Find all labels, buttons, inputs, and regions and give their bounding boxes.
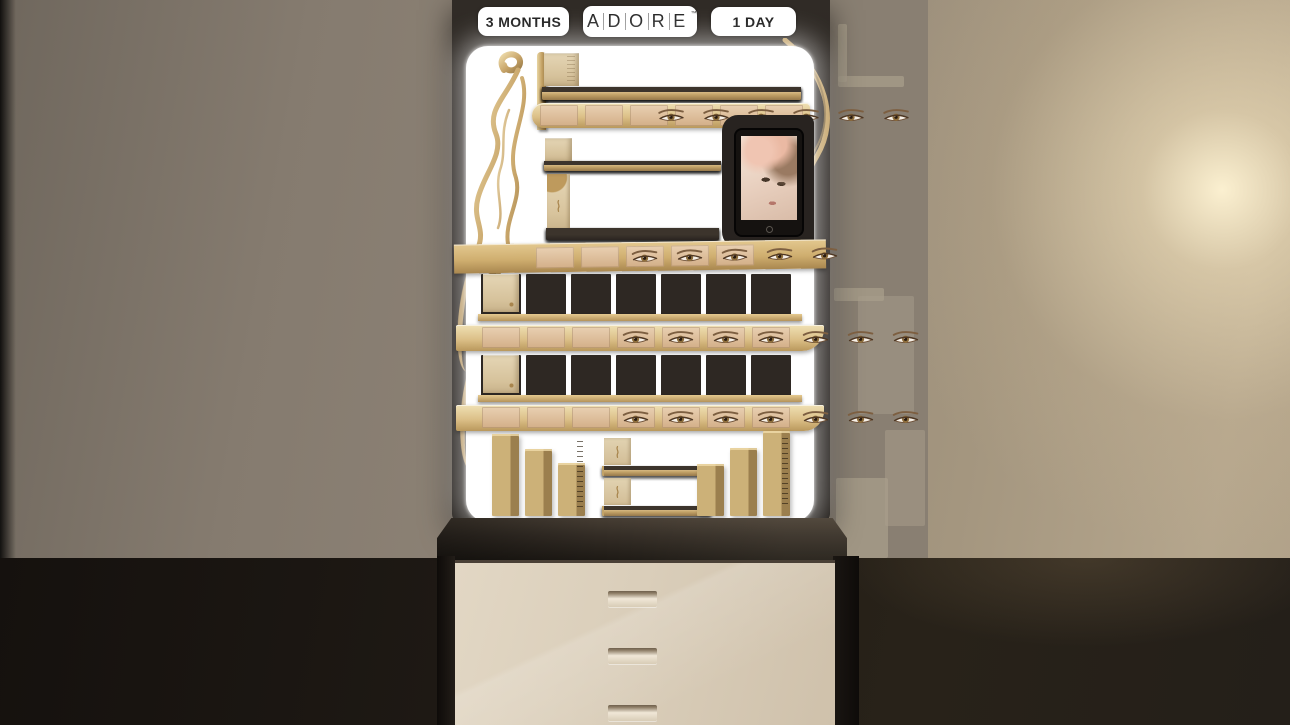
drawer-handles — [608, 591, 657, 721]
eye-sample-photo — [752, 327, 790, 348]
product-box-holder — [602, 506, 711, 516]
brand-logo: ADORE™ — [583, 6, 697, 37]
eye-sample-photo — [540, 105, 578, 126]
eye-sample-photo — [572, 407, 610, 428]
eye-sample-photo — [617, 407, 655, 428]
product-box-holder — [602, 466, 711, 476]
tall-gold-carton — [525, 449, 552, 516]
eye-sample-photo — [671, 245, 709, 267]
eye-sample-photo — [707, 327, 745, 348]
eye-sample-photo — [675, 105, 713, 126]
eye-sample-photo — [707, 407, 745, 428]
eye-sample-strip-4 — [456, 405, 824, 431]
model-portrait-photo — [741, 136, 797, 220]
trademark-symbol: ™ — [691, 11, 697, 17]
label-1-day: 1 DAY — [711, 7, 796, 36]
logo-letter: O — [625, 11, 647, 32]
tall-cartons-right — [697, 431, 790, 516]
drawer-handle — [608, 648, 657, 664]
logo-letter: R — [648, 11, 669, 32]
tall-product-carton — [694, 174, 719, 240]
eye-sample-tiles — [482, 407, 790, 428]
gold-signature-motif — [613, 483, 622, 501]
drawer-handle — [608, 591, 657, 607]
eye-sample-photo — [527, 407, 565, 428]
product-box-holder — [546, 228, 719, 240]
logo-letter: A — [583, 11, 603, 32]
logo-letter: D — [604, 11, 625, 32]
eye-sample-photo — [617, 327, 655, 348]
cube-box-face — [604, 478, 631, 505]
gold-signature-motif — [554, 196, 563, 216]
panel-shadow-shape — [858, 296, 914, 414]
label-3-months-text: 3 MONTHS — [486, 14, 562, 30]
eye-sample-photo — [662, 327, 700, 348]
eye-sample-photo — [752, 407, 790, 428]
floor-light-reflection — [840, 558, 1290, 648]
product-box — [692, 138, 721, 171]
tall-gold-carton — [492, 434, 519, 516]
gold-signature-motif — [613, 443, 622, 461]
product-carton-face — [547, 174, 570, 230]
eye-sample-tiles — [482, 327, 790, 348]
eye-sample-photo — [630, 105, 668, 126]
eye-sample-photo — [716, 244, 754, 266]
eye-sample-photo — [572, 327, 610, 348]
base-side-post-right — [833, 556, 859, 725]
drawer-cabinet — [455, 560, 835, 725]
eye-sample-photo — [581, 246, 619, 268]
cube-boxes-bottom-row — [602, 478, 711, 516]
product-box-holder — [542, 87, 801, 100]
eye-sample-photo — [536, 247, 574, 269]
logo-letter: E — [669, 11, 689, 32]
panel-shadow-shape — [885, 430, 925, 526]
tablet — [734, 128, 804, 237]
shelf-row-2-small — [544, 138, 721, 171]
eye-sample-photo — [585, 105, 623, 126]
shelf-row-1 — [542, 53, 801, 100]
gold-shelf-lip — [478, 395, 802, 402]
tablet-housing — [722, 115, 814, 248]
tall-gold-carton — [697, 464, 724, 516]
base-side-post-left — [437, 556, 455, 725]
label-3-months: 3 MONTHS — [478, 7, 569, 36]
tall-gold-carton — [558, 463, 585, 516]
scene: 3 MONTHS ADORE™ 1 DAY — [0, 0, 1290, 725]
eye-sample-strip-3 — [456, 325, 824, 351]
shelf-row-2-tall — [546, 174, 719, 240]
gold-shelf-lip — [478, 314, 802, 321]
label-1-day-text: 1 DAY — [733, 14, 775, 30]
product-box-holder — [544, 161, 721, 171]
product-box-face — [544, 53, 579, 86]
product-box-face — [545, 138, 572, 162]
eye-sample-photo — [482, 327, 520, 348]
eye-sample-tiles — [536, 244, 754, 268]
wall-shadow-edge — [0, 0, 16, 565]
product-box-face — [483, 355, 519, 393]
cube-boxes-top-row — [602, 438, 711, 476]
eye-sample-photo — [662, 407, 700, 428]
panel-shadow-shape — [838, 76, 904, 87]
tablet-home-button — [766, 226, 773, 233]
product-box — [762, 53, 801, 100]
tall-cartons-left — [492, 434, 585, 516]
tall-gold-carton — [763, 431, 790, 516]
eye-sample-photo — [527, 327, 565, 348]
drawer-handle — [608, 705, 657, 721]
eye-sample-photo — [626, 246, 664, 268]
display-unit: 3 MONTHS ADORE™ 1 DAY — [452, 0, 830, 522]
tall-gold-carton — [730, 448, 757, 516]
display-base-plinth — [437, 518, 847, 560]
eye-sample-photo — [482, 407, 520, 428]
backlit-panel — [466, 46, 814, 522]
eye-sample-strip-2 — [454, 239, 826, 273]
product-box-face — [483, 274, 519, 312]
cube-box-face — [604, 438, 631, 465]
